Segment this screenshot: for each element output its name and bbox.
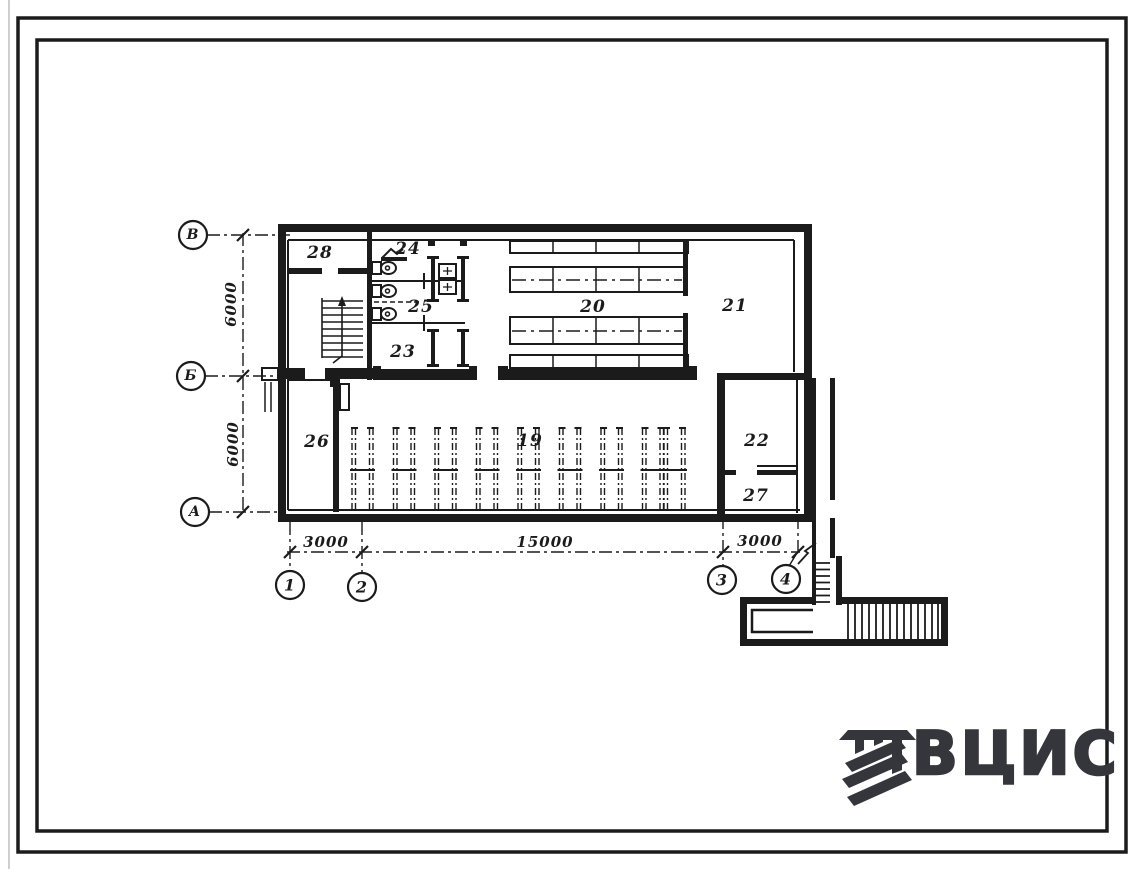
room-label-25: 25	[408, 297, 434, 317]
room-label-20: 20	[580, 297, 606, 317]
landing-inner-line	[752, 610, 813, 632]
vcis-logo-icon	[838, 718, 918, 813]
room-label-26: 26	[304, 432, 330, 452]
dim-15000: 15000	[516, 533, 573, 551]
duct-shaft	[340, 384, 349, 410]
axis-col-2: 2	[356, 578, 368, 597]
wc-fixtures	[372, 262, 396, 320]
axis-col-1: 1	[284, 576, 296, 595]
dim-6000-bottom: 6000	[224, 421, 242, 467]
porch-step-lines	[265, 382, 271, 412]
room-label-22: 22	[744, 431, 770, 451]
exterior-stair-treads	[848, 604, 938, 639]
room-label-27: 27	[743, 486, 769, 506]
drawing-sheet: 28 24 25 23 20 21 26 19 22 27 6000 6000 …	[0, 0, 1139, 869]
exterior-stair-landing	[740, 597, 948, 646]
dim-6000-top: 6000	[222, 281, 240, 327]
room-label-24: 24	[395, 239, 421, 259]
washbasins	[439, 264, 456, 294]
entrance-porch	[262, 368, 278, 380]
room-label-19: 19	[517, 431, 543, 451]
vcis-logo-text: ВЦИС	[912, 724, 1120, 784]
dim-3000-right: 3000	[737, 532, 783, 550]
axis-row-a: А	[189, 504, 201, 520]
vcis-logo: ВЦИС	[838, 718, 1098, 813]
room-label-23: 23	[390, 342, 416, 362]
corridor-stair-treads	[816, 563, 830, 602]
axis-col-3: 3	[716, 571, 728, 590]
dim-3000-left: 3000	[303, 533, 349, 551]
room-label-28: 28	[307, 243, 333, 263]
east-corridor	[812, 378, 842, 605]
room-label-21: 21	[722, 296, 748, 316]
axis-row-v: В	[187, 227, 200, 243]
axis-row-b: Б	[185, 368, 198, 384]
interior-staircase	[322, 296, 363, 363]
axis-col-4: 4	[780, 570, 792, 589]
